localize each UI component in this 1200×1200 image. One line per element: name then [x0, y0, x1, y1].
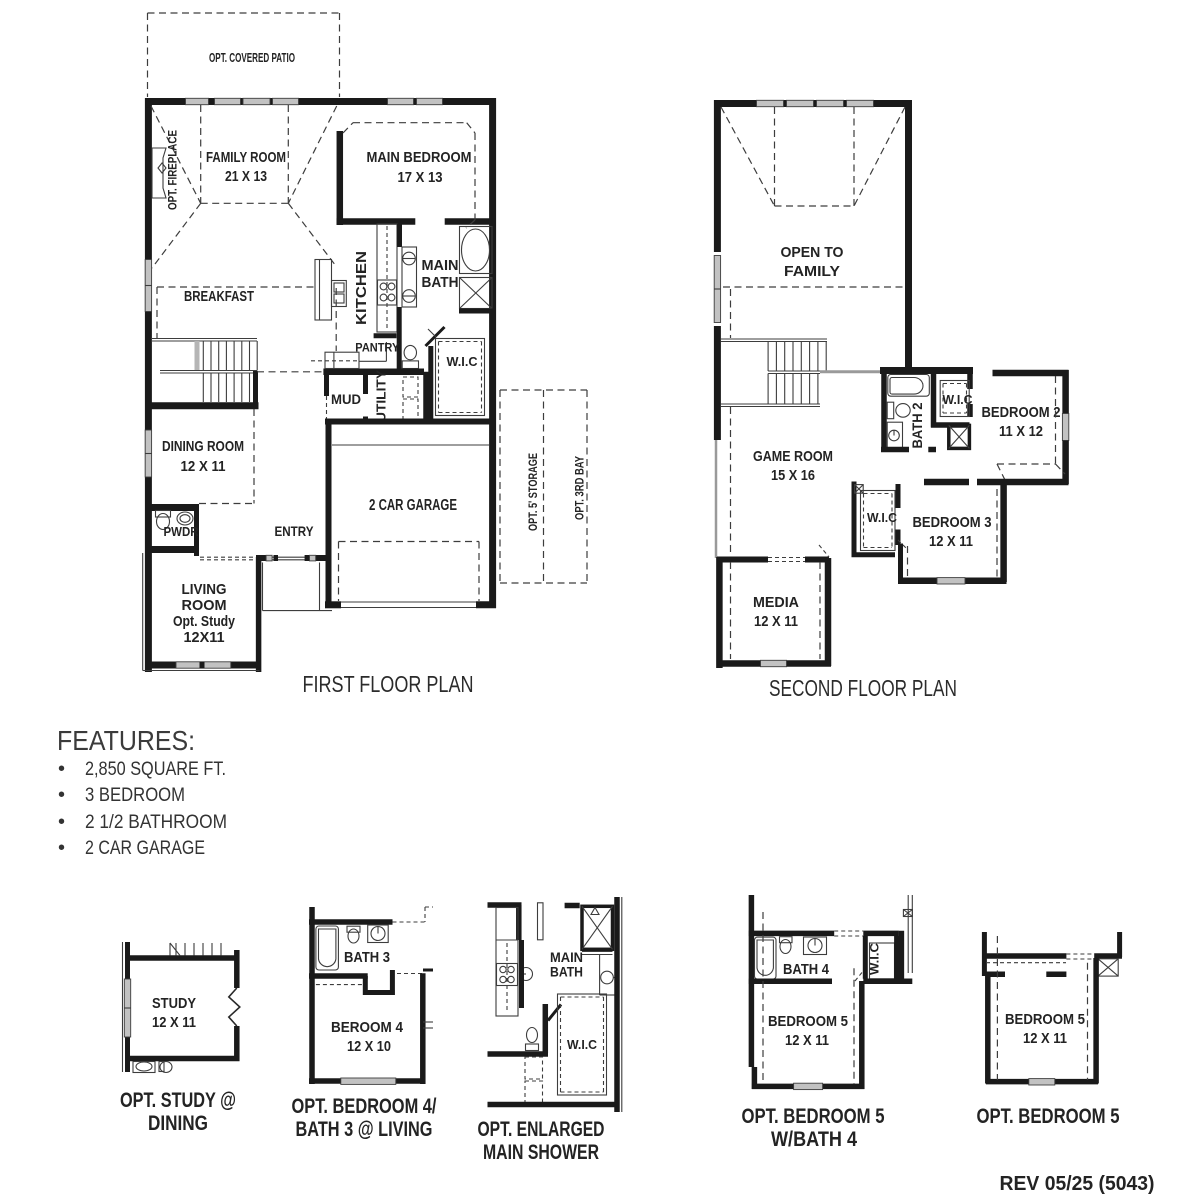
svg-text:ENTRY: ENTRY	[275, 523, 315, 539]
svg-text:12 X 11: 12 X 11	[929, 533, 973, 550]
svg-text:BATH 2: BATH 2	[910, 403, 925, 449]
svg-text:BATH: BATH	[422, 274, 459, 291]
svg-text:OPT. FIREPLACE: OPT. FIREPLACE	[168, 130, 180, 210]
svg-text:W.I.C: W.I.C	[943, 393, 973, 407]
svg-text:W.I.C: W.I.C	[867, 511, 897, 525]
svg-text:DINING: DINING	[148, 1112, 208, 1135]
svg-text:BATH 4: BATH 4	[783, 962, 829, 978]
svg-text:FAMILY: FAMILY	[784, 263, 840, 280]
svg-text:OPT. 3RD BAY: OPT. 3RD BAY	[575, 456, 587, 520]
svg-text:SECOND FLOOR PLAN: SECOND FLOOR PLAN	[769, 675, 957, 701]
svg-text:FIRST FLOOR PLAN: FIRST FLOOR PLAN	[303, 671, 474, 697]
svg-text:MAIN BEDROOM: MAIN BEDROOM	[367, 149, 472, 166]
svg-text:2 CAR GARAGE: 2 CAR GARAGE	[85, 837, 205, 859]
svg-text:OPT. BEDROOM 5: OPT. BEDROOM 5	[742, 1105, 885, 1128]
svg-text:12 X 11: 12 X 11	[754, 613, 798, 630]
svg-text:17 X 13: 17 X 13	[398, 169, 443, 186]
svg-text:BEDROOM 5: BEDROOM 5	[768, 1013, 848, 1030]
svg-text:MAIN: MAIN	[422, 257, 459, 274]
svg-text:W/BATH 4: W/BATH 4	[771, 1128, 857, 1151]
svg-text:PANTRY: PANTRY	[355, 341, 399, 355]
svg-text:PWDR: PWDR	[164, 525, 199, 539]
svg-text:OPT. ENLARGED: OPT. ENLARGED	[478, 1118, 605, 1141]
svg-text:W.I.C: W.I.C	[447, 355, 478, 369]
svg-text:BATH 3: BATH 3	[344, 950, 390, 966]
svg-text:BEDROOM 5: BEDROOM 5	[1005, 1011, 1085, 1028]
svg-text:BATH 3 @ LIVING: BATH 3 @ LIVING	[296, 1118, 433, 1141]
svg-text:15 X 16: 15 X 16	[771, 467, 815, 484]
svg-text:2,850 SQUARE FT.: 2,850 SQUARE FT.	[85, 758, 226, 780]
svg-text:3 BEDROOM: 3 BEDROOM	[85, 784, 185, 806]
svg-text:12 X 10: 12 X 10	[347, 1038, 391, 1055]
svg-text:OPT. COVERED PATIO: OPT. COVERED PATIO	[209, 51, 295, 65]
svg-text:MEDIA: MEDIA	[753, 594, 799, 611]
svg-text:BATH: BATH	[550, 965, 583, 980]
svg-text:•: •	[58, 811, 65, 833]
svg-text:W.I.C: W.I.C	[567, 1038, 597, 1052]
svg-text:11 X 12: 11 X 12	[999, 423, 1043, 440]
svg-text:OPT. STUDY @: OPT. STUDY @	[120, 1089, 236, 1112]
svg-text:12 X 11: 12 X 11	[785, 1032, 829, 1049]
svg-text:BEDROOM 3: BEDROOM 3	[913, 514, 992, 531]
svg-text:2 CAR GARAGE: 2 CAR GARAGE	[369, 497, 457, 514]
svg-text:•: •	[58, 837, 65, 859]
svg-text:MAIN: MAIN	[550, 950, 583, 965]
svg-text:12 X 11: 12 X 11	[181, 458, 226, 475]
svg-text:UTILITY: UTILITY	[375, 369, 389, 422]
svg-text:W.I.C: W.I.C	[868, 943, 882, 975]
svg-text:FAMILY ROOM: FAMILY ROOM	[206, 149, 286, 166]
svg-text:KITCHEN: KITCHEN	[353, 251, 370, 325]
svg-text:12 X 11: 12 X 11	[152, 1014, 196, 1031]
svg-text:Opt. Study: Opt. Study	[173, 613, 236, 630]
svg-text:OPT. BEDROOM 5: OPT. BEDROOM 5	[977, 1105, 1120, 1128]
svg-text:2 1/2 BATHROOM: 2 1/2 BATHROOM	[85, 811, 227, 833]
svg-text:21 X 13: 21 X 13	[225, 168, 267, 185]
svg-text:•: •	[58, 758, 65, 780]
svg-text:OPT. 5' STORAGE: OPT. 5' STORAGE	[528, 453, 540, 531]
svg-text:BREAKFAST: BREAKFAST	[184, 288, 254, 305]
svg-text:•: •	[58, 784, 65, 806]
svg-text:OPT. BEDROOM 4/: OPT. BEDROOM 4/	[292, 1095, 437, 1118]
svg-text:REV 05/25 (5043): REV 05/25 (5043)	[1000, 1172, 1155, 1195]
svg-text:BEROOM 4: BEROOM 4	[331, 1019, 404, 1036]
svg-text:MAIN SHOWER: MAIN SHOWER	[483, 1141, 599, 1164]
svg-text:OPEN TO: OPEN TO	[781, 244, 844, 261]
svg-text:DINING ROOM: DINING ROOM	[162, 438, 244, 455]
svg-text:STUDY: STUDY	[152, 995, 196, 1012]
svg-text:GAME ROOM: GAME ROOM	[753, 448, 833, 465]
svg-text:12X11: 12X11	[184, 629, 225, 646]
svg-text:MUD: MUD	[331, 391, 361, 407]
svg-text:12 X 11: 12 X 11	[1023, 1030, 1067, 1047]
svg-text:BEDROOM 2: BEDROOM 2	[982, 404, 1061, 421]
svg-text:FEATURES:: FEATURES:	[57, 725, 195, 756]
svg-text:ROOM: ROOM	[182, 597, 227, 614]
svg-text:LIVING: LIVING	[182, 581, 227, 598]
